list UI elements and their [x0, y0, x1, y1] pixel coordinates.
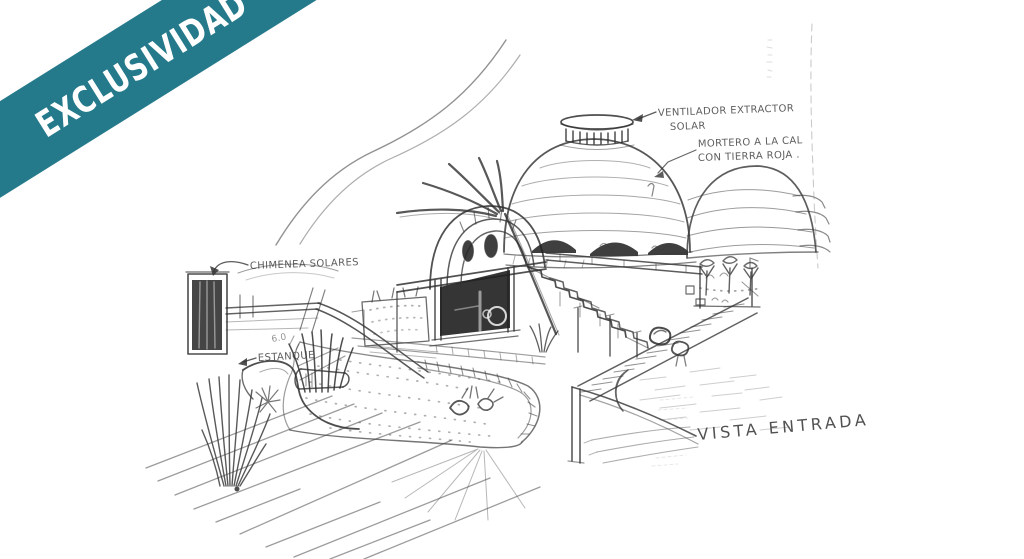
entrance-pavilion: [397, 206, 546, 352]
page-edge-line: [811, 24, 818, 268]
chimenea-leader-line: [214, 262, 248, 271]
right-dome: [686, 166, 830, 305]
mortero-label-line2: CON TIERRA ROJA .: [698, 149, 800, 164]
ventilador-arrowhead-icon: [632, 114, 643, 122]
chimenea-label: CHIMENEA SOLARES: [250, 257, 359, 272]
ventilador-label-line2: SOLAR: [670, 121, 706, 133]
deck-planks: [146, 338, 545, 559]
hill-contour-lines: [238, 40, 520, 280]
estanque-arrowhead-icon: [238, 358, 247, 366]
mortero-label-line1: MORTERO A LA CAL: [698, 135, 803, 150]
planter-box: [352, 287, 429, 346]
foreground-wall: [568, 370, 698, 463]
stamp-marks: [767, 40, 772, 77]
annotation-mortero: MORTERO A LA CAL CON TIERRA ROJA .: [648, 135, 803, 196]
ventilator-cap: [560, 115, 634, 150]
vista-entrada-title: VISTA ENTRADA: [697, 410, 870, 444]
ventilador-label-line1: VENTILADOR EXTRACTOR: [658, 103, 795, 119]
sketch-page: VENTILADOR EXTRACTOR SOLAR MORTERO A LA …: [0, 0, 1024, 559]
annotation-ventilador: VENTILADOR EXTRACTOR SOLAR: [632, 103, 794, 133]
dimension-label: 6.0: [271, 332, 288, 344]
main-dome: [504, 139, 696, 268]
